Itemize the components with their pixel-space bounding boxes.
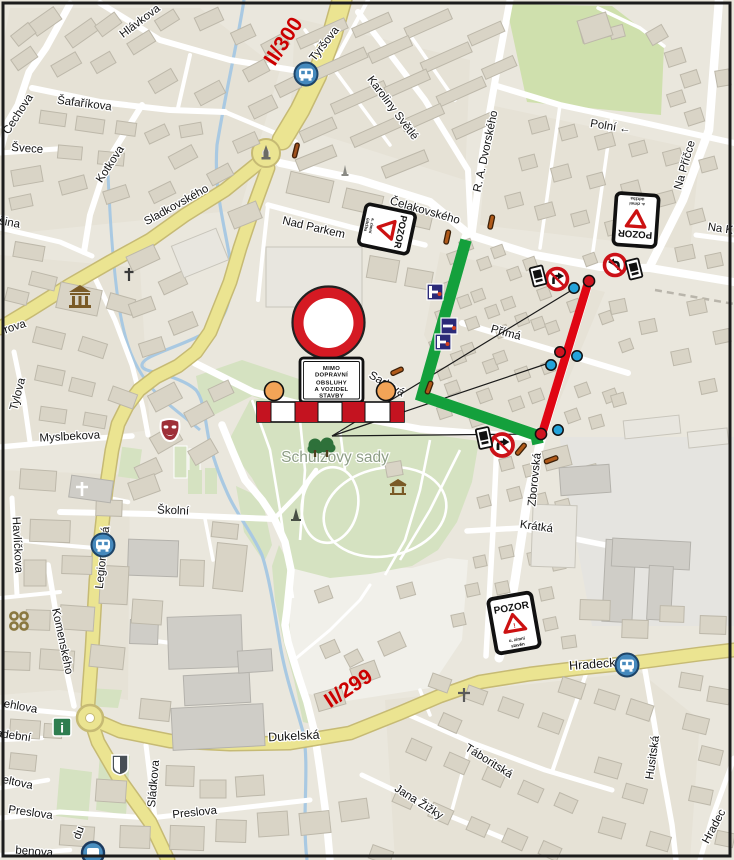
svg-text:OBSLUHY: OBSLUHY — [316, 381, 347, 387]
svg-text:Schulzovy sady: Schulzovy sady — [281, 449, 389, 466]
svg-text:i: i — [60, 720, 64, 736]
svg-text:A VOZIDEL: A VOZIDEL — [315, 387, 349, 393]
svg-text:Švece: Švece — [11, 141, 44, 156]
svg-text:údržba: údržba — [630, 196, 645, 202]
svg-text:Školní: Školní — [157, 503, 190, 517]
svg-text:Dukelská: Dukelská — [268, 728, 320, 745]
svg-text:DOPRAVNÍ: DOPRAVNÍ — [315, 371, 348, 379]
svg-text:MIMO: MIMO — [323, 366, 340, 372]
svg-text:STAVBY: STAVBY — [319, 394, 344, 400]
